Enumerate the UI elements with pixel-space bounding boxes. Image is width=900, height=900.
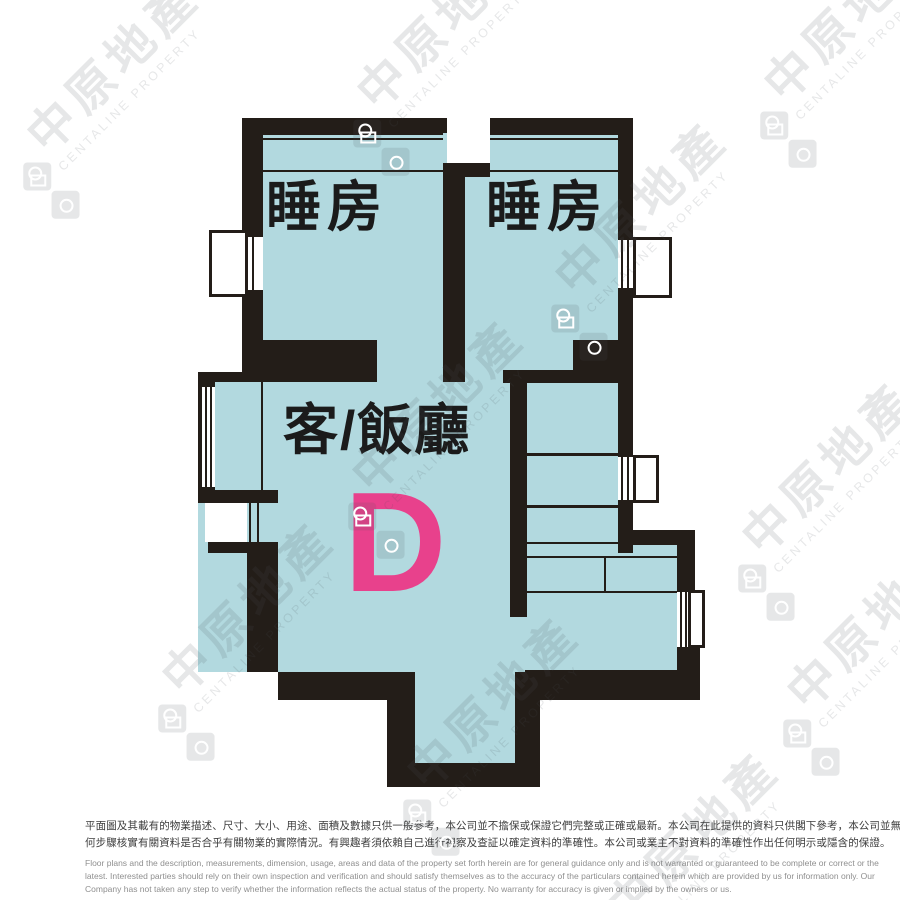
wall-segment xyxy=(198,490,278,503)
wall-segment xyxy=(633,530,695,545)
wall-segment xyxy=(208,542,278,553)
wall-segment xyxy=(618,118,633,240)
window-line xyxy=(465,170,618,172)
wall-segment xyxy=(278,672,415,700)
wall-segment xyxy=(618,500,633,553)
window-line xyxy=(527,542,618,544)
window-line xyxy=(621,457,623,500)
disclaimer-en-line3: Company has not taken any step to verify… xyxy=(85,883,900,896)
window-opening xyxy=(202,387,215,487)
wall-segment xyxy=(618,288,633,340)
wall-segment xyxy=(247,553,278,672)
window-line xyxy=(604,556,606,593)
disclaimer-en-line1: Floor plans and the description, measure… xyxy=(85,857,900,870)
window-line xyxy=(680,592,682,647)
wall-segment xyxy=(618,383,633,457)
window-line xyxy=(210,387,212,487)
unit-letter: D xyxy=(344,472,447,614)
floor-plan-page: 睡房 睡房 客/飯廳 D 中原地產CENTALINE PROPERTY中原地產C… xyxy=(0,0,900,900)
wall-segment xyxy=(510,383,527,617)
bedroom-right-label: 睡房 xyxy=(486,180,608,235)
wall-segment xyxy=(242,118,263,237)
window-line xyxy=(627,457,629,500)
wall-segment xyxy=(263,340,377,382)
disclaimer-en-line2: latest. Interested parties should rely o… xyxy=(85,870,900,883)
window-line xyxy=(257,503,259,542)
window xyxy=(633,455,659,503)
wall-segment xyxy=(242,290,263,382)
window-line xyxy=(205,387,207,487)
window-line xyxy=(490,138,618,140)
window xyxy=(209,230,248,297)
wall-segment xyxy=(198,372,263,382)
window-line xyxy=(249,503,251,542)
window-line xyxy=(263,133,443,135)
wall-segment xyxy=(677,645,700,700)
void-area xyxy=(205,503,247,542)
void-area xyxy=(447,112,490,163)
window-line xyxy=(263,170,443,172)
window-line xyxy=(527,505,618,508)
window-line xyxy=(621,240,623,288)
window-line xyxy=(263,138,443,140)
window-line xyxy=(627,240,629,288)
window-line xyxy=(252,237,254,290)
window-line xyxy=(527,453,618,456)
floor-plan: 睡房 睡房 客/飯廳 D xyxy=(0,0,900,900)
bedroom-left-label: 睡房 xyxy=(266,180,388,235)
void-area xyxy=(633,370,695,530)
wall-segment xyxy=(490,118,633,133)
window-line xyxy=(261,382,263,490)
wall-segment xyxy=(443,163,465,382)
living-dining-label: 客/飯廳 xyxy=(283,403,471,458)
wall-segment xyxy=(387,763,540,787)
disclaimer: 平面圖及其載有的物業描述、尺寸、大小、用途、面積及數據只供一般參考，本公司並不擔… xyxy=(85,818,900,896)
wall-segment xyxy=(525,670,700,700)
window-line xyxy=(685,592,687,647)
window xyxy=(633,237,672,298)
wall-segment xyxy=(503,370,633,383)
wall-segment xyxy=(242,118,447,133)
window xyxy=(688,590,705,648)
disclaimer-zh-line2: 何步驟核實有關資料是否合乎有關物業的實際情況。有興趣者須依賴自己進行視察及查証以… xyxy=(85,835,900,852)
window-line xyxy=(527,591,677,593)
wall-segment xyxy=(387,700,415,763)
window-line xyxy=(490,133,618,135)
room-area xyxy=(400,660,525,770)
disclaimer-zh-line1: 平面圖及其載有的物業描述、尺寸、大小、用途、面積及數據只供一般參考，本公司並不擔… xyxy=(85,818,900,835)
window-line xyxy=(527,556,677,558)
